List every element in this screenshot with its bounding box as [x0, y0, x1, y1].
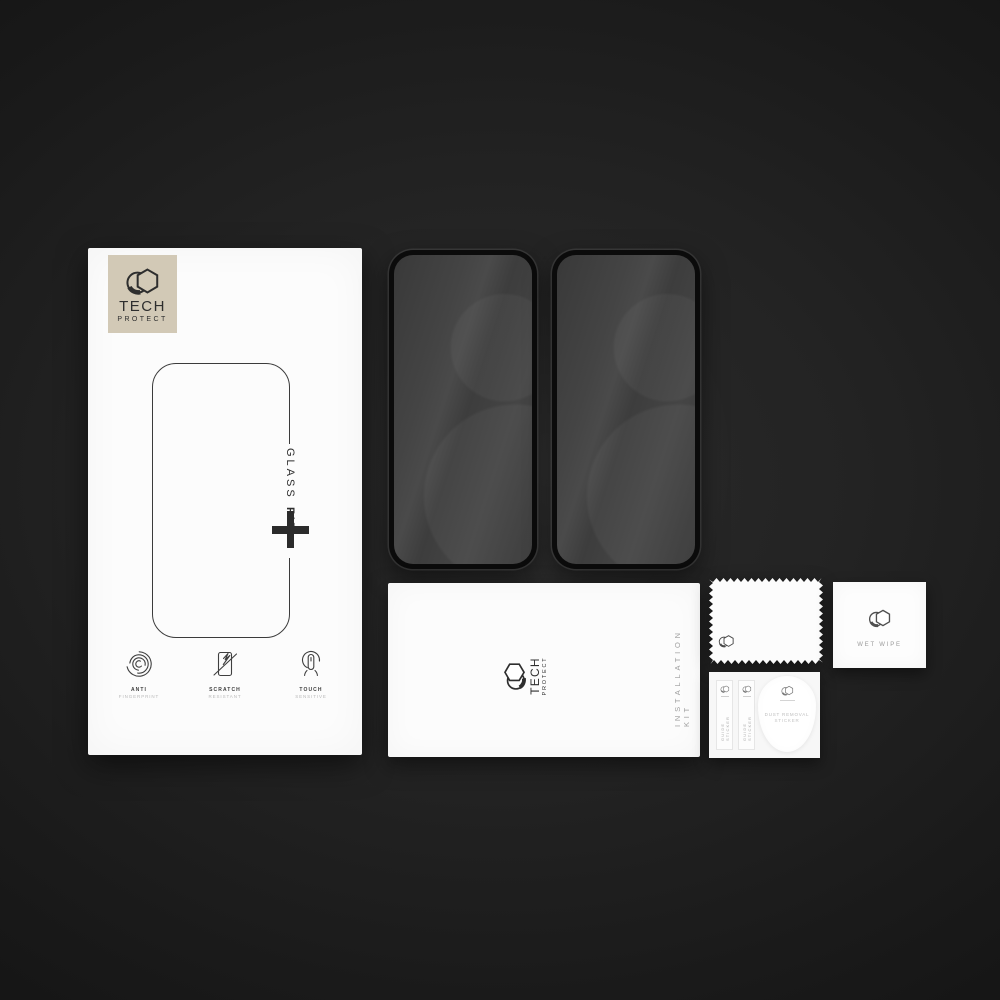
- feature-title: SCRATCH: [209, 687, 241, 694]
- guide-sticker-label: GUIDE STICKER: [720, 701, 730, 741]
- tempered-glass-2: [552, 250, 700, 569]
- dust-removal-sticker: DUST REMOVAL STICKER: [758, 676, 816, 752]
- brand-word-protect: PROTECT: [117, 316, 167, 323]
- sticker-card: GUIDE STICKER GUIDE STICKER DUST REMOVAL…: [709, 672, 820, 758]
- brand-word-protect: PROTECT: [543, 657, 549, 696]
- hexagon-logo-icon: [718, 634, 735, 648]
- hexagon-logo-icon: [720, 685, 730, 693]
- divider: [721, 696, 729, 697]
- feature-anti-fingerprint: ANTI FINGERPRINT: [108, 646, 170, 700]
- divider: [743, 696, 751, 697]
- glass-screen-1: [394, 255, 532, 564]
- hexagon-logo-icon: [742, 685, 752, 693]
- feature-subtitle: FINGERPRINT: [119, 694, 159, 700]
- glass-label: GLASS: [284, 448, 296, 500]
- feature-title: ANTI: [131, 687, 147, 694]
- divider: [780, 700, 795, 701]
- guide-sticker-2: GUIDE STICKER: [738, 680, 755, 750]
- hexagon-logo-icon: [868, 608, 892, 628]
- guide-sticker-1: GUIDE STICKER: [716, 680, 733, 750]
- plus-icon: [272, 511, 309, 548]
- scratch-resistant-icon: [207, 646, 243, 682]
- phone-outline: [152, 363, 290, 638]
- hexagon-logo-icon: [125, 266, 161, 296]
- kit-brand-logo: TECH PROTECT: [494, 631, 556, 721]
- brand-logo-square: TECH PROTECT: [108, 255, 177, 333]
- feature-subtitle: RESISTANT: [208, 694, 241, 700]
- feature-touch-sensitive: TOUCH SENSITIVE: [280, 646, 342, 700]
- feature-row: ANTI FINGERPRINT SCRATCH RESISTANT: [88, 646, 362, 700]
- anti-fingerprint-icon: [120, 646, 158, 682]
- hexagon-logo-icon: [781, 685, 794, 696]
- dust-sticker-line1: DUST REMOVAL: [765, 711, 810, 718]
- feature-scratch-resistant: SCRATCH RESISTANT: [194, 646, 256, 700]
- feature-subtitle: SENSITIVE: [295, 694, 327, 700]
- installation-kit-label: INSTALLATION KIT: [673, 613, 691, 727]
- glass-screen-2: [557, 255, 695, 564]
- wet-wipe-label: WET WIPE: [857, 642, 902, 648]
- brand-word-tech: TECH: [119, 299, 166, 314]
- feature-title: TOUCH: [299, 687, 322, 694]
- tempered-glass-1: [389, 250, 537, 569]
- microfiber-cloth-wrap: [709, 578, 823, 664]
- hexagon-logo-icon: [502, 661, 527, 691]
- guide-sticker-label: GUIDE STICKER: [742, 701, 752, 741]
- brand-word-tech: TECH: [529, 657, 541, 694]
- microfiber-cloth: [709, 578, 823, 664]
- wet-wipe-packet: WET WIPE: [833, 582, 926, 668]
- touch-sensitive-icon: [293, 646, 329, 682]
- product-photo-scene: TECH PROTECT GLASSFIT ANTI FINGERPRI: [0, 0, 1000, 1000]
- retail-box: TECH PROTECT GLASSFIT ANTI FINGERPRI: [88, 248, 362, 755]
- installation-kit-box: TECH PROTECT INSTALLATION KIT: [388, 583, 700, 757]
- dust-sticker-line2: STICKER: [774, 718, 799, 724]
